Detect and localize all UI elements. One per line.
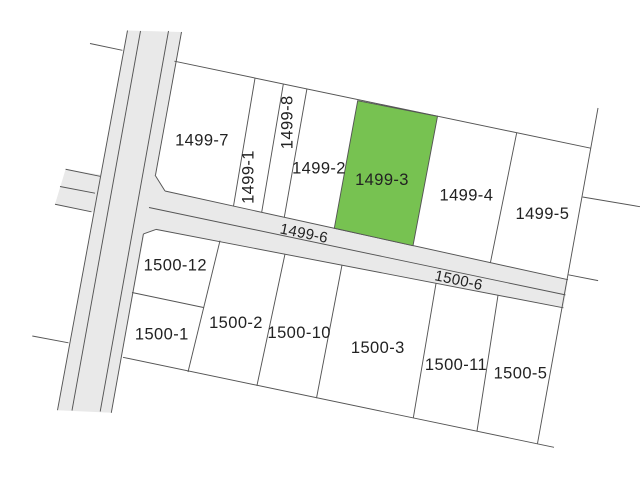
svg-text:1499-2: 1499-2 bbox=[292, 160, 346, 178]
svg-text:1499-7: 1499-7 bbox=[175, 132, 229, 150]
svg-text:1499-4: 1499-4 bbox=[440, 187, 494, 205]
svg-text:1499-1: 1499-1 bbox=[240, 150, 258, 204]
svg-text:1500-11: 1500-11 bbox=[425, 356, 487, 374]
svg-text:1500-5: 1500-5 bbox=[494, 365, 548, 383]
svg-text:1500-10: 1500-10 bbox=[268, 324, 331, 342]
svg-text:1499-3: 1499-3 bbox=[355, 171, 409, 189]
svg-text:1500-1: 1500-1 bbox=[135, 325, 189, 343]
svg-text:1499-8: 1499-8 bbox=[278, 95, 296, 149]
svg-text:1500-12: 1500-12 bbox=[144, 257, 207, 275]
svg-text:1500-3: 1500-3 bbox=[351, 339, 405, 357]
svg-text:1500-2: 1500-2 bbox=[209, 314, 263, 332]
svg-text:1499-5: 1499-5 bbox=[516, 205, 570, 223]
